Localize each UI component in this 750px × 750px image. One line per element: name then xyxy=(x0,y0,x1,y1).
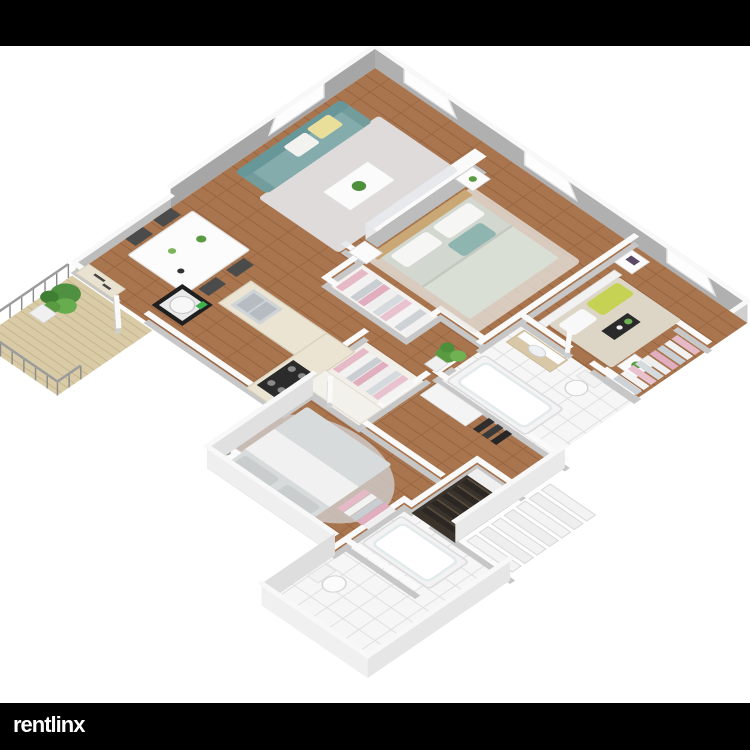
top-letterbox-bar xyxy=(0,0,750,46)
isometric-group xyxy=(0,46,750,678)
screenshot-stage: rentlinx xyxy=(0,0,750,750)
bottom-letterbox-bar: rentlinx xyxy=(0,703,750,750)
floor-plan-svg xyxy=(0,46,750,703)
floor-plan-render xyxy=(0,46,750,703)
rentlinx-logo: rentlinx xyxy=(13,712,84,738)
